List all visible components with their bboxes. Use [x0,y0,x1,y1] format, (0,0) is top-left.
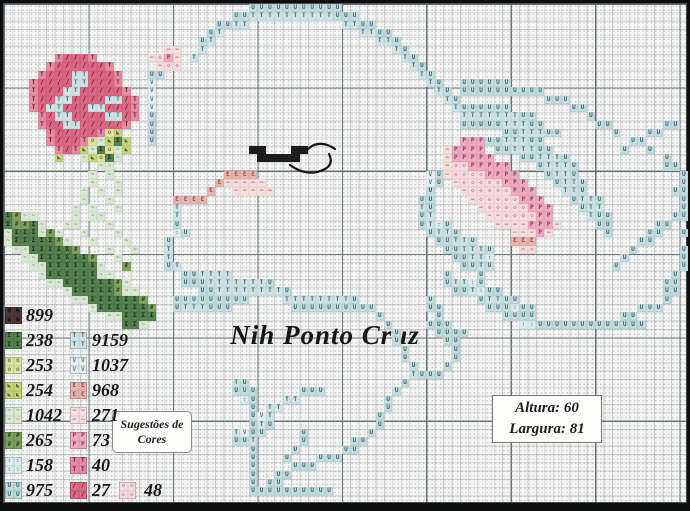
stitch-cell: U [468,121,476,129]
stitch-cell: / [114,104,122,112]
stitch-cell: U [587,321,595,329]
color-suggestions-line2: Cores [138,432,167,447]
stitch-cell: Σ [97,296,105,304]
stitch-cell: U [612,321,620,329]
stitch-cell: U [215,296,223,304]
stitch-cell: U [376,421,384,429]
legend-code-265: 265 [26,431,53,449]
stitch-cell: ~ [80,154,88,162]
stitch-cell: U [646,304,654,312]
stitch-cell: ~ [88,204,96,212]
stitch-cell: T [553,171,561,179]
stitch-cell: ◇ [485,179,493,187]
stitch-cell: Σ [29,246,37,254]
stitch-cell: T [460,279,468,287]
legend-swatch-symbol: – [70,416,79,425]
stitch-cell: P [460,154,468,162]
stitch-cell: U [502,296,510,304]
stitch-cell: # [114,279,122,287]
stitch-cell: Σ [38,254,46,262]
stitch-cell: Σ [46,262,54,270]
stitch-cell: Σ [80,271,88,279]
stitch-cell: U [443,321,451,329]
stitch-cell: Σ [55,262,63,270]
stitch-cell: / [55,121,63,129]
stitch-cell: : [511,304,519,312]
stitch-cell: U [544,129,552,137]
stitch-cell: o [105,129,113,137]
legend-swatch-symbol: / [79,491,88,500]
stitch-cell: / [80,54,88,62]
stitch-cell: ◇ [477,187,485,195]
stitch-cell: U [392,387,400,395]
stitch-cell: U [485,104,493,112]
stitch-cell: – [240,179,248,187]
stitch-cell: T [435,87,443,95]
stitch-cell: U [342,446,350,454]
stitch-cell: U [207,304,215,312]
stitch-cell: T [266,287,274,295]
legend-swatch-158: :::: [5,457,22,474]
stitch-cell: Σ [139,312,147,320]
stitch-cell: Σ [105,296,113,304]
stitch-cell: U [494,79,502,87]
stitch-cell: U [460,262,468,270]
stitch-cell [274,154,282,162]
stitch-cell: Σ [12,237,20,245]
stitch-cell: T [46,62,54,70]
stitch-cell: T [300,296,308,304]
stitch-cell: ~ [21,254,29,262]
stitch-cell: P [511,179,519,187]
stitch-cell: T [435,229,443,237]
stitch-cell: / [38,96,46,104]
stitch-cell: U [654,221,662,229]
stitch-cell: P [460,146,468,154]
stitch-cell: U [680,262,688,270]
stitch-cell: Σ [105,304,113,312]
stitch-cell: U [637,321,645,329]
backstitch-line [307,144,335,150]
stitch-cell: T [55,146,63,154]
stitch-cell: ◇ [477,171,485,179]
stitch-cell: U [435,237,443,245]
stitch-cell: ◇ [164,62,172,70]
stitch-cell: U [443,279,451,287]
legend-swatch-symbol: ◇ [119,482,128,491]
stitch-cell: T [266,404,274,412]
legend-swatch-symbol: : [14,457,23,466]
stitch-cell: U [198,287,206,295]
stitch-cell: U [435,329,443,337]
stitch-cell: ~ [72,296,80,304]
legend-swatch-271: –––– [70,407,87,424]
legend-swatch-symbol: T [70,466,79,475]
stitch-cell: / [38,104,46,112]
stitch-cell: ◇ [477,179,485,187]
stitch-cell: T [553,154,561,162]
stitch-cell: ◇ [511,204,519,212]
stitch-cell: U [325,304,333,312]
stitch-cell: T [426,212,434,220]
stitch-cell: U [401,346,409,354]
stitch-cell: U [578,321,586,329]
stitch-cell: U [528,112,536,120]
stitch-cell: U [266,479,274,487]
stitch-cell: P [544,212,552,220]
stitch-cell: T [477,254,485,262]
legend-swatch-symbol: T [79,341,88,350]
stitch-cell: / [55,87,63,95]
stitch-cell: U [164,237,172,245]
stitch-cell: / [55,79,63,87]
stitch-cell: T [240,21,248,29]
stitch-cell: U [519,154,527,162]
stitch-cell: T [350,21,358,29]
stitch-cell: / [97,121,105,129]
stitch-cell: Σ [72,271,80,279]
stitch-cell [257,154,265,162]
stitch-cell: / [55,137,63,145]
stitch-cell: P [452,154,460,162]
legend-swatch-48: ◇◇◇◇ [119,482,136,499]
stitch-cell: U [494,304,502,312]
stitch-cell: T [418,71,426,79]
stitch-cell: U [283,454,291,462]
stitch-cell: / [105,87,113,95]
stitch-cell: U [494,121,502,129]
stitch-cell: ~ [114,179,122,187]
stitch-cell: T [570,187,578,195]
stitch-cell: U [148,137,156,145]
stitch-cell: U [291,462,299,470]
stitch-cell: ~ [131,287,139,295]
stitch-cell: T [511,112,519,120]
stitch-cell: / [122,104,130,112]
stitch-cell: U [392,329,400,337]
stitch-cell: P [536,204,544,212]
stitch-cell: U [257,487,265,495]
legend-swatch-symbol: ~ [5,407,14,416]
stitch-cell: T [207,37,215,45]
stitch-cell: Σ [122,296,130,304]
stitch-cell: P [528,204,536,212]
legend-code-968: 968 [92,381,119,399]
stitch-cell: U [468,87,476,95]
legend-swatch-symbol: Σ [5,332,14,341]
stitch-cell: U [291,304,299,312]
stitch-cell: U [274,4,282,12]
stitch-cell: # [148,304,156,312]
stitch-cell: U [367,429,375,437]
stitch-cell: U [544,146,552,154]
stitch-cell: ◇ [502,204,510,212]
stitch-cell: – [519,221,527,229]
stitch-cell: T [131,112,139,120]
stitch-cell: U [637,304,645,312]
stitch-cell: ~ [38,221,46,229]
stitch-cell: P [502,179,510,187]
stitch-cell: ◣ [88,154,96,162]
stitch-cell: U [249,462,257,470]
stitch-cell: U [359,21,367,29]
stitch-cell: / [46,121,54,129]
stitch-cell [257,146,265,154]
stitch-cell: U [620,254,628,262]
stitch-cell: P [468,162,476,170]
legend-swatch-symbol: ▦ [5,307,14,316]
legend-code-1042: 1042 [26,406,62,424]
stitch-cell: U [392,337,400,345]
stitch-cell: T [257,12,265,20]
stitch-cell: – [468,196,476,204]
stitch-cell: Σ [46,254,54,262]
stitch-cell: U [502,312,510,320]
stitch-cell: / [63,71,71,79]
stitch-cell: – [249,187,257,195]
stitch-cell: V [148,87,156,95]
stitch-cell: U [477,296,485,304]
stitch-cell: : [477,287,485,295]
stitch-cell: T [570,179,578,187]
stitch-cell: U [460,254,468,262]
stitch-cell: Σ [139,304,147,312]
stitch-cell: U [485,246,493,254]
stitch-cell [283,154,291,162]
stitch-cell: Σ [38,246,46,254]
stitch-cell: U [528,304,536,312]
stitch-cell: U [308,387,316,395]
stitch-cell: ~ [122,237,130,245]
stitch-cell: ~ [38,271,46,279]
stitch-cell: U [561,96,569,104]
stitch-cell: T [283,12,291,20]
legend-code-254: 254 [26,381,53,399]
stitch-cell: T [207,271,215,279]
stitch-cell: : [435,221,443,229]
legend-swatch-symbol: : [14,466,23,475]
stitch-cell: U [536,321,544,329]
stitch-cell: # [139,296,147,304]
stitch-cell: / [46,112,54,120]
stitch-cell: – [232,187,240,195]
legend-swatch-symbol: ~ [14,407,23,416]
stitch-cell: T [232,21,240,29]
legend-swatch-symbol: ◣ [14,382,23,391]
legend-swatch-symbol: ◣ [5,391,14,400]
size-box: Altura: 60 Largura: 81 [492,395,602,443]
stitch-cell: U [485,287,493,295]
stitch-cell: U [350,12,358,20]
stitch-cell: U [308,304,316,312]
stitch-cell: U [680,196,688,204]
stitch-cell: Ɛ [181,196,189,204]
legend-swatch-symbol: ◣ [5,382,14,391]
stitch-cell: : [528,321,536,329]
stitch-cell: U [443,329,451,337]
stitch-cell: / [97,79,105,87]
stitch-cell: ~ [80,187,88,195]
stitch-cell: ◇ [452,171,460,179]
stitch-cell: U [612,262,620,270]
stitch-cell: T [511,137,519,145]
legend-swatch-symbol: Ɛ [70,382,79,391]
stitch-cell: T [477,246,485,254]
stitch-cell: U [291,487,299,495]
stitch-cell: – [173,54,181,62]
stitch-cell: U [452,329,460,337]
stitch-cell: ◇ [519,204,527,212]
stitch-cell: U [376,312,384,320]
stitch-cell: U [502,129,510,137]
stitch-cell: U [426,371,434,379]
stitch-cell: o [105,146,113,154]
stitch-cell: ◇ [519,212,527,220]
legend-code-899: 899 [26,306,53,324]
stitch-cell: Σ [29,229,37,237]
stitch-cell: ~ [88,171,96,179]
stitch-cell: Σ [97,287,105,295]
stitch-cell: T [29,79,37,87]
stitch-cell: U [367,21,375,29]
stitch-cell: T [308,296,316,304]
stitch-cell: / [97,87,105,95]
stitch-cell: U [300,387,308,395]
legend-swatch-symbol: ~ [5,416,14,425]
stitch-cell: V [148,79,156,87]
stitch-cell: T [587,212,595,220]
stitch-cell: / [72,54,80,62]
stitch-cell: U [384,404,392,412]
stitch-cell: U [283,4,291,12]
stitch-cell: P [485,171,493,179]
stitch-cell: ~ [29,212,37,220]
stitch-cell: Σ [4,221,12,229]
stitch-cell: U [435,179,443,187]
stitch-cell: T [215,279,223,287]
stitch-cell: Ɛ [528,237,536,245]
stitch-cell: U [342,12,350,20]
stitch-cell: Σ [55,246,63,254]
stitch-cell: T [325,296,333,304]
stitch-cell: ~ [80,196,88,204]
stitch-cell: U [181,229,189,237]
stitch-cell: U [460,121,468,129]
altura-label: Altura: [515,400,560,416]
stitch-cell: Σ [114,304,122,312]
stitch-cell: T [325,12,333,20]
stitch-cell: ~ [105,271,113,279]
stitch-cell: / [80,96,88,104]
legend-swatch-symbol: T [79,457,88,466]
legend-swatch-symbol: T [79,332,88,341]
stitch-cell: U [316,387,324,395]
stitch-cell: T [190,54,198,62]
legend-swatch-symbol: ▦ [14,307,23,316]
stitch-cell: o [97,154,105,162]
stitch-cell: T [232,379,240,387]
stitch-cell: U [283,471,291,479]
legend-swatch-symbol: T [79,466,88,475]
stitch-cell: T [97,104,105,112]
stitch-cell: P [528,187,536,195]
stitch-cell: U [274,479,282,487]
stitch-cell: T [342,296,350,304]
stitch-cell: U [680,171,688,179]
stitch-cell: U [502,79,510,87]
stitch-cell: T [266,412,274,420]
legend-swatch-symbol: ◇ [128,491,137,500]
stitch-cell: U [426,296,434,304]
stitch-cell: U [629,312,637,320]
stitch-cell: U [300,429,308,437]
stitch-cell: U [671,187,679,195]
stitch-cell: U [452,337,460,345]
stitch-cell: T [300,12,308,20]
stitch-cell: T [561,179,569,187]
stitch-cell: T [29,87,37,95]
stitch-cell: P [519,196,527,204]
stitch-cell: P [511,187,519,195]
stitch-cell: ◇ [494,196,502,204]
stitch-cell: Σ [80,262,88,270]
stitch-cell: U [629,246,637,254]
stitch-cell: T [114,79,122,87]
stitch-cell: U [333,454,341,462]
stitch-cell: – [528,246,536,254]
stitch-cell: T [72,71,80,79]
stitch-cell: U [452,246,460,254]
stitch-cell: # [88,254,96,262]
stitch-cell: U [359,304,367,312]
stitch-cell: U [384,321,392,329]
stitch-cell: T [426,79,434,87]
stitch-cell: / [46,87,54,95]
stitch-cell: – [443,154,451,162]
stitch-cell: U [426,304,434,312]
stitch-cell: U [401,354,409,362]
legend-swatch-symbol: # [14,432,23,441]
stitch-cell: – [494,212,502,220]
stitch-cell: Σ [12,229,20,237]
stitch-cell: U [435,312,443,320]
stitch-cell: / [72,129,80,137]
stitch-cell: U [511,312,519,320]
stitch-cell: : [485,254,493,262]
stitch-cell: / [72,112,80,120]
stitch-cell: ~ [114,204,122,212]
stitch-cell: U [452,354,460,362]
stitch-cell: P [477,146,485,154]
stitch-cell: U [604,229,612,237]
stitch-cell: ~ [72,221,80,229]
stitch-cell: / [88,71,96,79]
stitch-cell: T [173,212,181,220]
stitch-cell: T [468,254,476,262]
stitch-cell: U [604,321,612,329]
stitch-cell: – [511,229,519,237]
stitch-cell: U [671,279,679,287]
stitch-cell: T [63,121,71,129]
stitch-cell: U [215,304,223,312]
stitch-cell: U [148,129,156,137]
stitch-cell: T [114,96,122,104]
stitch-cell: / [63,54,71,62]
stitch-cell: ~ [72,212,80,220]
stitch-cell: U [249,487,257,495]
stitch-cell: U [181,296,189,304]
legend-swatch-27: //// [70,482,87,499]
